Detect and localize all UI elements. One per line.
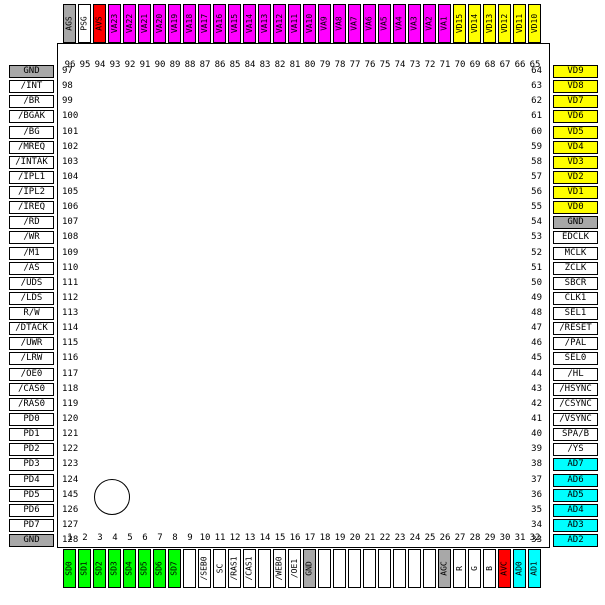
pin-5-label: SD4 xyxy=(123,549,136,588)
pin-54-label: GND xyxy=(553,216,598,229)
pin-145-number: 145 xyxy=(62,489,90,502)
pin-12-label: /RAS1 xyxy=(228,549,241,588)
pin-86-number: 86 xyxy=(212,60,228,71)
pin-8-label: SD7 xyxy=(168,549,181,588)
pin-77-label: VA7 xyxy=(348,4,361,43)
pin-81-number: 81 xyxy=(287,60,303,71)
pin-115-label: /UWR xyxy=(9,337,54,350)
pin-3-number: 3 xyxy=(92,533,108,544)
pin-6-label-text: SD5 xyxy=(140,561,149,575)
pin-107-number: 107 xyxy=(62,216,90,229)
pin-100-number: 100 xyxy=(62,110,90,123)
pin-99-label-text: /BR xyxy=(23,97,39,106)
pin-73-label: VA3 xyxy=(408,4,421,43)
pin-94-number: 94 xyxy=(92,60,108,71)
pin-86-label-text: VA16 xyxy=(215,14,224,33)
pin-16-label: /OE1 xyxy=(288,549,301,588)
pin-6-number: 6 xyxy=(137,533,153,544)
pin-15-number: 15 xyxy=(272,533,288,544)
pin-22-label xyxy=(378,549,391,588)
pin-84-label: VA14 xyxy=(243,4,256,43)
pin-78-label: VA8 xyxy=(333,4,346,43)
pin-8-number: 8 xyxy=(167,533,183,544)
pin-122-label-text: PD2 xyxy=(23,445,39,454)
pin-7-number: 7 xyxy=(152,533,168,544)
pin-100-label: /BGAK xyxy=(9,110,54,123)
pin-38-label-text: AD7 xyxy=(567,460,583,469)
pin-58-label-text: VD3 xyxy=(567,158,583,167)
pin-89-number: 89 xyxy=(167,60,183,71)
pin-71-number: 71 xyxy=(437,60,453,71)
pin-105-number: 105 xyxy=(62,186,90,199)
pin-72-label: VA2 xyxy=(423,4,436,43)
pin-48-label-text: SEL1 xyxy=(565,309,587,318)
pin-58-number: 58 xyxy=(508,156,542,169)
pin-33-label-text: AD2 xyxy=(567,536,583,545)
pin-56-number: 56 xyxy=(508,186,542,199)
pin-17-number: 17 xyxy=(302,533,318,544)
pin-79-number: 79 xyxy=(317,60,333,71)
pin-77-number: 77 xyxy=(347,60,363,71)
pin-124-label-text: PD4 xyxy=(23,476,39,485)
pin-119-number: 119 xyxy=(62,398,90,411)
pin-90-number: 90 xyxy=(152,60,168,71)
pin-70-label: VD15 xyxy=(453,4,466,43)
pin-43-label-text: /HSYNC xyxy=(559,385,592,394)
pin-77-label-text: VA7 xyxy=(350,16,359,30)
pin-79-label: VA9 xyxy=(318,4,331,43)
pin-11-label-text: SC xyxy=(215,564,224,574)
pin-48-number: 48 xyxy=(508,307,542,320)
pin-104-number: 104 xyxy=(62,171,90,184)
pin-7-label-text: SD6 xyxy=(155,561,164,575)
pin-128-number: 128 xyxy=(62,534,90,547)
pin-91-number: 91 xyxy=(137,60,153,71)
pin-6-label: SD5 xyxy=(138,549,151,588)
pin-113-number: 113 xyxy=(62,307,90,320)
pin-46-number: 46 xyxy=(508,337,542,350)
pin-69-number: 69 xyxy=(467,60,483,71)
pin-103-number: 103 xyxy=(62,156,90,169)
pin-128-label: GND xyxy=(9,534,54,547)
pin-126-label: PD6 xyxy=(9,504,54,517)
pin-19-label xyxy=(333,549,346,588)
pin-25-label xyxy=(423,549,436,588)
pin-123-number: 123 xyxy=(62,458,90,471)
pin-92-label: VA22 xyxy=(123,4,136,43)
pin-59-label-text: VD4 xyxy=(567,143,583,152)
pin-114-label: /DTACK xyxy=(9,322,54,335)
pin-68-label-text: VD13 xyxy=(485,14,494,33)
pin-26-label: AGC xyxy=(438,549,451,588)
pin-107-label-text: /RD xyxy=(23,218,39,227)
pin-33-label: AD2 xyxy=(553,534,598,547)
pin-8-label-text: SD7 xyxy=(170,561,179,575)
pin-108-label: /WR xyxy=(9,231,54,244)
pin-39-number: 39 xyxy=(508,443,542,456)
pin-48-label: SEL1 xyxy=(553,307,598,320)
pin-39-label-text: /YS xyxy=(567,445,583,454)
pin-15-label-text: /WEB0 xyxy=(275,556,284,580)
pin-41-label-text: /VSYNC xyxy=(559,415,592,424)
pin-120-label: PD0 xyxy=(9,413,54,426)
pin-45-label-text: SEL0 xyxy=(565,354,587,363)
pin-104-label-text: /IPL1 xyxy=(18,173,45,182)
pin-111-label-text: /UDS xyxy=(21,279,43,288)
pin-145-label-text: PD5 xyxy=(23,491,39,500)
pin-105-label-text: /IPL2 xyxy=(18,188,45,197)
pin-57-label-text: VD2 xyxy=(567,173,583,182)
pin-27-label: R xyxy=(453,549,466,588)
pin-83-label-text: VA13 xyxy=(260,14,269,33)
pin-85-label-text: VA15 xyxy=(230,14,239,33)
pin-97-label-text: GND xyxy=(23,67,39,76)
pin-71-label-text: VA1 xyxy=(440,16,449,30)
pin-39-label: /YS xyxy=(553,443,598,456)
pin-5-label-text: SD4 xyxy=(125,561,134,575)
pin-14-number: 14 xyxy=(257,533,273,544)
pin-115-number: 115 xyxy=(62,337,90,350)
chip-body xyxy=(57,43,550,548)
pin-7-label: SD6 xyxy=(153,549,166,588)
pin-95-label: PSG xyxy=(78,4,91,43)
pin-29-label: B xyxy=(483,549,496,588)
pin-93-label: VA23 xyxy=(108,4,121,43)
pin-28-label-text: G xyxy=(470,566,479,571)
pin-31-label-text: AD0 xyxy=(515,561,524,575)
pin-119-label: /RAS0 xyxy=(9,398,54,411)
pin-64-label-text: VD9 xyxy=(567,67,583,76)
pin-10-label: /SEB0 xyxy=(198,549,211,588)
pin-128-label-text: GND xyxy=(23,536,39,545)
pin-127-number: 127 xyxy=(62,519,90,532)
pin-81-label-text: VA11 xyxy=(290,14,299,33)
pin-18-label xyxy=(318,549,331,588)
pin-115-label-text: /UWR xyxy=(21,339,43,348)
pin-38-number: 38 xyxy=(508,458,542,471)
pin-57-number: 57 xyxy=(508,171,542,184)
pin-117-label: /OE0 xyxy=(9,368,54,381)
pin-46-label-text: /PAL xyxy=(565,339,587,348)
pin-116-number: 116 xyxy=(62,352,90,365)
pin-9-number: 9 xyxy=(182,533,198,544)
pin-10-label-text: /SEB0 xyxy=(200,556,209,580)
chip-pinout-diagram: AGS96PSG95AVS94VA2393VA2292VA2191VA2090V… xyxy=(0,0,605,605)
pin-57-label: VD2 xyxy=(553,171,598,184)
pin-88-label: VA18 xyxy=(183,4,196,43)
pin-44-label-text: /HL xyxy=(567,370,583,379)
pin-20-number: 20 xyxy=(347,533,363,544)
pin-66-label: VD11 xyxy=(513,4,526,43)
pin-122-label: PD2 xyxy=(9,443,54,456)
pin-98-label: /INT xyxy=(9,80,54,93)
pin-55-label-text: VD0 xyxy=(567,203,583,212)
pin-87-label-text: VA17 xyxy=(200,14,209,33)
pin-119-label-text: /RAS0 xyxy=(18,400,45,409)
pin-76-label-text: VA6 xyxy=(365,16,374,30)
pin-73-number: 73 xyxy=(407,60,423,71)
pin-70-label-text: VD15 xyxy=(455,14,464,33)
pin-72-label-text: VA2 xyxy=(425,16,434,30)
pin-37-number: 37 xyxy=(508,474,542,487)
pin-63-label-text: VD8 xyxy=(567,82,583,91)
pin-2-label: SD1 xyxy=(78,549,91,588)
pin-102-label: /MREQ xyxy=(9,141,54,154)
pin-116-label: /LRW xyxy=(9,352,54,365)
pin-101-label: /BG xyxy=(9,126,54,139)
pin-82-label-text: VA12 xyxy=(275,14,284,33)
pin-98-number: 98 xyxy=(62,80,90,93)
pin-38-label: AD7 xyxy=(553,458,598,471)
pin-61-label-text: VD6 xyxy=(567,112,583,121)
pin-23-number: 23 xyxy=(392,533,408,544)
pin-3-label-text: SD2 xyxy=(95,561,104,575)
pin-117-label-text: /OE0 xyxy=(21,370,43,379)
pin-27-number: 27 xyxy=(452,533,468,544)
pin-83-number: 83 xyxy=(257,60,273,71)
pin-9-label xyxy=(183,549,196,588)
pin-50-number: 50 xyxy=(508,277,542,290)
pin-89-label-text: VA19 xyxy=(170,14,179,33)
pin-102-label-text: /MREQ xyxy=(18,143,45,152)
pin-92-label-text: VA22 xyxy=(125,14,134,33)
pin-118-number: 118 xyxy=(62,383,90,396)
pin-60-number: 60 xyxy=(508,126,542,139)
pin-56-label-text: VD1 xyxy=(567,188,583,197)
pin-80-label: VA10 xyxy=(303,4,316,43)
pin-109-label: /M1 xyxy=(9,247,54,260)
pin-112-label: /LDS xyxy=(9,292,54,305)
pin-71-label: VA1 xyxy=(438,4,451,43)
pin-118-label-text: /CAS0 xyxy=(18,385,45,394)
pin-42-label-text: /CSYNC xyxy=(559,400,592,409)
pin-102-number: 102 xyxy=(62,141,90,154)
pin-97-number: 97 xyxy=(62,65,90,78)
pin-74-label-text: VA4 xyxy=(395,16,404,30)
pin-80-number: 80 xyxy=(302,60,318,71)
pin-88-number: 88 xyxy=(182,60,198,71)
pin-56-label: VD1 xyxy=(553,186,598,199)
pin-50-label-text: SBCR xyxy=(565,279,587,288)
pin-2-label-text: SD1 xyxy=(80,561,89,575)
pin-32-label-text: AD1 xyxy=(530,561,539,575)
pin-120-label-text: PD0 xyxy=(23,415,39,424)
pin-100-label-text: /BGAK xyxy=(18,112,45,121)
pin-91-label-text: VA21 xyxy=(140,14,149,33)
pin-93-number: 93 xyxy=(107,60,123,71)
pin-49-label-text: CLK1 xyxy=(565,294,587,303)
pin-26-label-text: AGC xyxy=(440,561,449,575)
pin-103-label: /INTAK xyxy=(9,156,54,169)
pin-23-label xyxy=(393,549,406,588)
pin-31-label: AD0 xyxy=(513,549,526,588)
pin-51-number: 51 xyxy=(508,262,542,275)
pin-81-label: VA11 xyxy=(288,4,301,43)
pin-11-label: SC xyxy=(213,549,226,588)
pin-52-label-text: MCLK xyxy=(565,249,587,258)
pin-64-number: 64 xyxy=(508,65,542,78)
pin-36-label: AD5 xyxy=(553,489,598,502)
pin-122-number: 122 xyxy=(62,443,90,456)
pin-35-label-text: AD4 xyxy=(567,506,583,515)
pin-62-label-text: VD7 xyxy=(567,97,583,106)
pin-40-number: 40 xyxy=(508,428,542,441)
pin-101-number: 101 xyxy=(62,126,90,139)
pin-55-label: VD0 xyxy=(553,201,598,214)
pin-13-label-text: /CAS1 xyxy=(245,556,254,580)
pin-16-number: 16 xyxy=(287,533,303,544)
pin-79-label-text: VA9 xyxy=(320,16,329,30)
pin-103-label-text: /INTAK xyxy=(15,158,48,167)
pin-121-label: PD1 xyxy=(9,428,54,441)
pin-83-label: VA13 xyxy=(258,4,271,43)
pin-54-label-text: GND xyxy=(567,218,583,227)
pin-75-number: 75 xyxy=(377,60,393,71)
pin-12-number: 12 xyxy=(227,533,243,544)
pin1-indicator-circle xyxy=(94,479,130,515)
pin-95-label-text: PSG xyxy=(80,16,89,30)
pin-98-label-text: /INT xyxy=(21,82,43,91)
pin-47-label: /RESET xyxy=(553,322,598,335)
pin-117-number: 117 xyxy=(62,368,90,381)
pin-64-label: VD9 xyxy=(553,65,598,78)
pin-17-label-text: GND xyxy=(305,561,314,575)
pin-62-label: VD7 xyxy=(553,95,598,108)
pin-73-label-text: VA3 xyxy=(410,16,419,30)
pin-52-number: 52 xyxy=(508,247,542,260)
pin-50-label: SBCR xyxy=(553,277,598,290)
pin-109-label-text: /M1 xyxy=(23,249,39,258)
pin-10-number: 10 xyxy=(197,533,213,544)
pin-52-label: MCLK xyxy=(553,247,598,260)
pin-101-label-text: /BG xyxy=(23,128,39,137)
pin-30-label-text: AVC xyxy=(500,561,509,575)
pin-14-label xyxy=(258,549,271,588)
pin-49-number: 49 xyxy=(508,292,542,305)
pin-106-number: 106 xyxy=(62,201,90,214)
pin-110-number: 110 xyxy=(62,262,90,275)
pin-114-label-text: /DTACK xyxy=(15,324,48,333)
pin-113-label: R/W xyxy=(9,307,54,320)
pin-76-label: VA6 xyxy=(363,4,376,43)
pin-35-label: AD4 xyxy=(553,504,598,517)
pin-33-number: 33 xyxy=(508,534,542,547)
pin-78-number: 78 xyxy=(332,60,348,71)
pin-123-label-text: PD3 xyxy=(23,460,39,469)
pin-53-label-text: EDCLK xyxy=(562,233,589,242)
pin-80-label-text: VA10 xyxy=(305,14,314,33)
pin-104-label: /IPL1 xyxy=(9,171,54,184)
pin-58-label: VD3 xyxy=(553,156,598,169)
pin-69-label: VD14 xyxy=(468,4,481,43)
pin-26-number: 26 xyxy=(437,533,453,544)
pin-40-label-text: SPA/B xyxy=(562,430,589,439)
pin-62-number: 62 xyxy=(508,95,542,108)
pin-65-label: VD10 xyxy=(528,4,541,43)
pin-60-label: VD5 xyxy=(553,126,598,139)
pin-127-label: PD7 xyxy=(9,519,54,532)
pin-63-number: 63 xyxy=(508,80,542,93)
pin-109-number: 109 xyxy=(62,247,90,260)
pin-68-label: VD13 xyxy=(483,4,496,43)
pin-4-label: SD3 xyxy=(108,549,121,588)
pin-20-label xyxy=(348,549,361,588)
pin-19-number: 19 xyxy=(332,533,348,544)
pin-40-label: SPA/B xyxy=(553,428,598,441)
pin-108-label-text: /WR xyxy=(23,233,39,242)
pin-63-label: VD8 xyxy=(553,80,598,93)
pin-54-number: 54 xyxy=(508,216,542,229)
pin-99-number: 99 xyxy=(62,95,90,108)
pin-96-label: AGS xyxy=(63,4,76,43)
pin-85-number: 85 xyxy=(227,60,243,71)
pin-41-label: /VSYNC xyxy=(553,413,598,426)
pin-22-number: 22 xyxy=(377,533,393,544)
pin-34-label-text: AD3 xyxy=(567,521,583,530)
pin-105-label: /IPL2 xyxy=(9,186,54,199)
pin-49-label: CLK1 xyxy=(553,292,598,305)
pin-96-label-text: AGS xyxy=(65,16,74,30)
pin-118-label: /CAS0 xyxy=(9,383,54,396)
pin-1-label: SD0 xyxy=(63,549,76,588)
pin-61-label: VD6 xyxy=(553,110,598,123)
pin-85-label: VA15 xyxy=(228,4,241,43)
pin-87-number: 87 xyxy=(197,60,213,71)
pin-43-number: 43 xyxy=(508,383,542,396)
pin-94-label: AVS xyxy=(93,4,106,43)
pin-15-label: /WEB0 xyxy=(273,549,286,588)
pin-18-number: 18 xyxy=(317,533,333,544)
pin-93-label-text: VA23 xyxy=(110,14,119,33)
pin-124-label: PD4 xyxy=(9,474,54,487)
pin-110-label: /AS xyxy=(9,262,54,275)
pin-126-number: 126 xyxy=(62,504,90,517)
pin-16-label-text: /OE1 xyxy=(290,559,299,578)
pin-24-label xyxy=(408,549,421,588)
pin-37-label: AD6 xyxy=(553,474,598,487)
pin-106-label-text: /IREQ xyxy=(18,203,45,212)
pin-112-number: 112 xyxy=(62,292,90,305)
pin-116-label-text: /LRW xyxy=(21,354,43,363)
pin-90-label-text: VA20 xyxy=(155,14,164,33)
pin-75-label-text: VA5 xyxy=(380,16,389,30)
pin-36-label-text: AD5 xyxy=(567,491,583,500)
pin-113-label-text: R/W xyxy=(23,309,39,318)
pin-110-label-text: /AS xyxy=(23,264,39,273)
pin-89-label: VA19 xyxy=(168,4,181,43)
pin-121-number: 121 xyxy=(62,428,90,441)
pin-60-label-text: VD5 xyxy=(567,128,583,137)
pin-120-number: 120 xyxy=(62,413,90,426)
pin-27-label-text: R xyxy=(455,566,464,571)
pin-90-label: VA20 xyxy=(153,4,166,43)
pin-32-label: AD1 xyxy=(528,549,541,588)
pin-121-label-text: PD1 xyxy=(23,430,39,439)
pin-43-label: /HSYNC xyxy=(553,383,598,396)
pin-78-label-text: VA8 xyxy=(335,16,344,30)
pin-72-number: 72 xyxy=(422,60,438,71)
pin-65-label-text: VD10 xyxy=(530,14,539,33)
pin-21-label xyxy=(363,549,376,588)
pin-44-label: /HL xyxy=(553,368,598,381)
pin-82-number: 82 xyxy=(272,60,288,71)
pin-36-number: 36 xyxy=(508,489,542,502)
pin-44-number: 44 xyxy=(508,368,542,381)
pin-145-label: PD5 xyxy=(9,489,54,502)
pin-74-number: 74 xyxy=(392,60,408,71)
pin-30-label: AVC xyxy=(498,549,511,588)
pin-35-number: 35 xyxy=(508,504,542,517)
